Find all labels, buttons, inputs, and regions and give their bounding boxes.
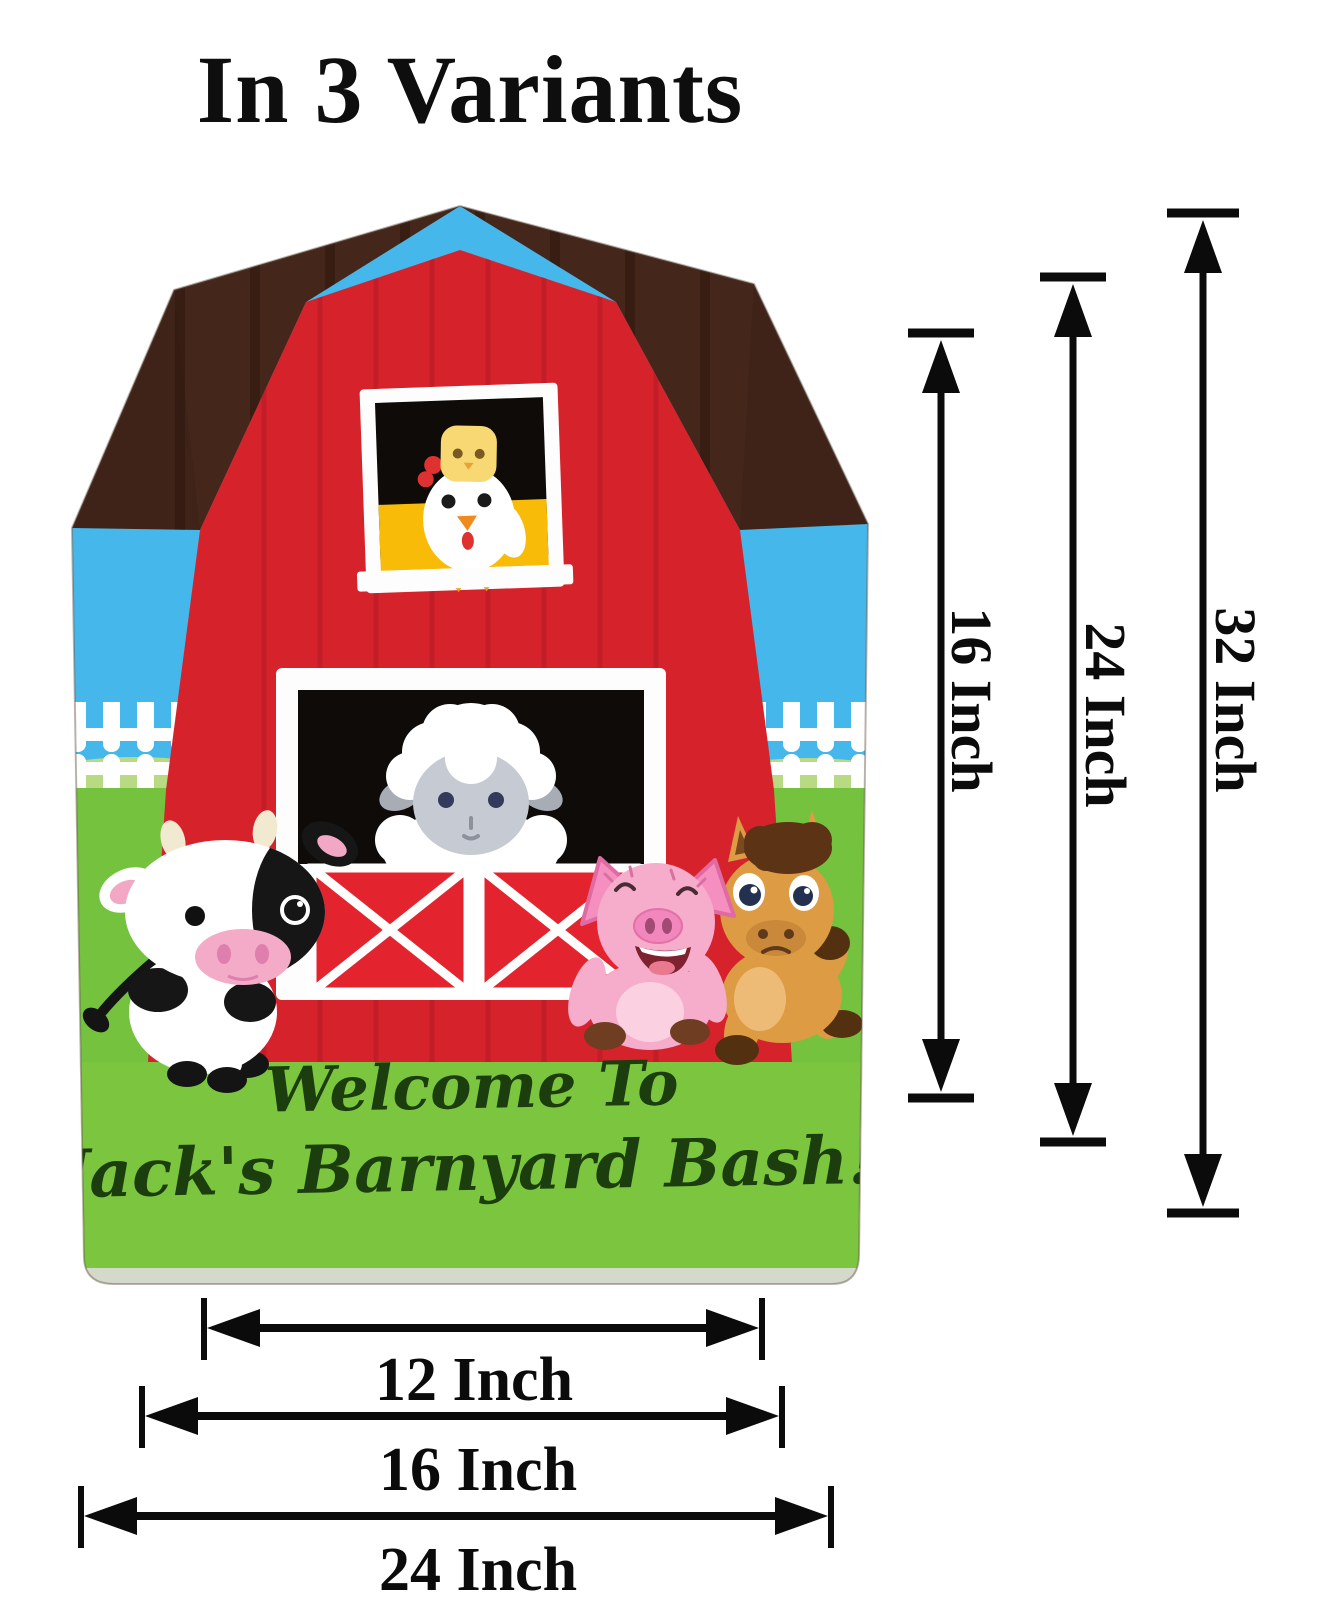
dimension-annotations: 16 Inch 24 Inch 32 Inch 12 In: [0, 0, 1333, 1600]
width-label-large: 24 Inch: [379, 1536, 577, 1600]
height-label-small: 16 Inch: [939, 607, 1004, 792]
width-label-small: 12 Inch: [375, 1346, 573, 1414]
height-label-medium: 24 Inch: [1073, 622, 1138, 807]
height-dimension-large: 32 Inch: [1167, 213, 1268, 1213]
width-dimension-small: 12 Inch: [204, 1298, 762, 1414]
width-label-medium: 16 Inch: [379, 1436, 577, 1504]
height-dimension-small: 16 Inch: [908, 333, 1004, 1098]
height-dimension-medium: 24 Inch: [1040, 277, 1138, 1142]
height-label-large: 32 Inch: [1203, 607, 1268, 792]
product-dimension-diagram: In 3 Variants: [0, 0, 1333, 1600]
